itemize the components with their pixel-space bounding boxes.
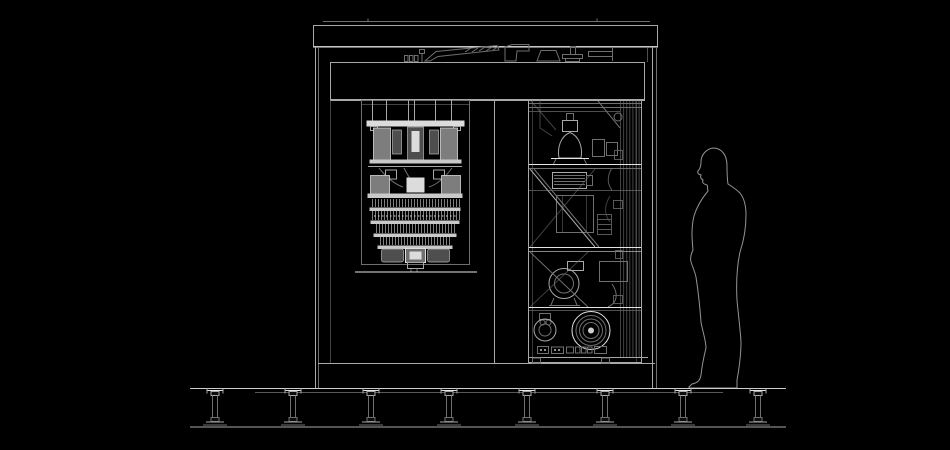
dome-pump	[551, 113, 622, 165]
enclosure-right-wall	[648, 47, 657, 389]
enclosure-left-wall	[316, 47, 331, 389]
floor-pedestal	[203, 389, 227, 426]
human-silhouette	[689, 148, 746, 388]
cryostat-chandelier	[355, 100, 477, 272]
rack-drawer-frame	[557, 196, 594, 233]
pipe-bundle	[621, 101, 640, 357]
large-turbo-pump	[572, 312, 610, 350]
floor-pedestal	[671, 389, 695, 426]
floor-pedestals	[203, 389, 770, 426]
rack-frame	[529, 101, 642, 363]
drawing-svg	[0, 0, 950, 450]
floor-pedestal	[359, 389, 383, 426]
floor-pedestal	[746, 389, 770, 426]
cryostat-mid-stage	[368, 167, 463, 199]
rack-braces-lower	[530, 252, 588, 307]
cryostat-wiring	[355, 249, 477, 273]
small-pump	[534, 314, 556, 342]
hanger-rods	[373, 100, 452, 121]
rack-side-fittings	[598, 151, 623, 304]
equipment-rack	[529, 100, 649, 363]
floor-pedestal	[515, 389, 539, 426]
cryostat-top-plate	[367, 121, 465, 127]
floor-pedestal	[281, 389, 305, 426]
cryostat-upper-stage	[370, 127, 462, 164]
finned-compressor	[553, 173, 593, 189]
floor-pedestal	[593, 389, 617, 426]
raised-access-floor	[190, 389, 786, 428]
connector-row	[538, 347, 607, 354]
rack-braces-upper	[530, 169, 599, 247]
floor-pedestal	[437, 389, 461, 426]
roof-slab	[313, 19, 658, 48]
technical-drawing	[0, 0, 950, 450]
front-header-panel	[330, 63, 645, 101]
